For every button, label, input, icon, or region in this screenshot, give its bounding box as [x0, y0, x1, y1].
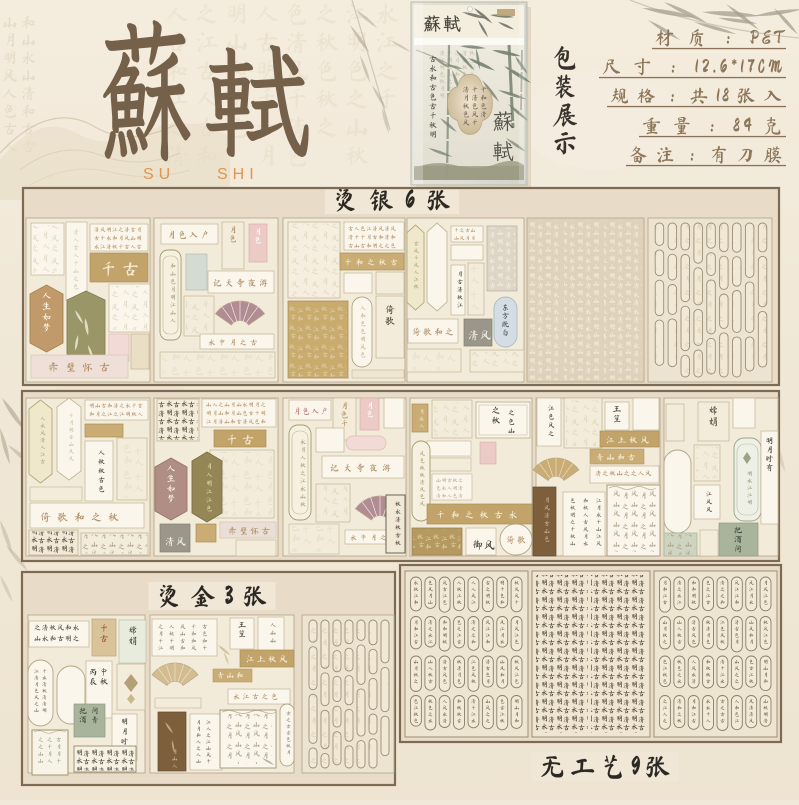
svg-text:SHI: SHI [217, 166, 259, 183]
svg-text:SU: SU [143, 166, 175, 183]
